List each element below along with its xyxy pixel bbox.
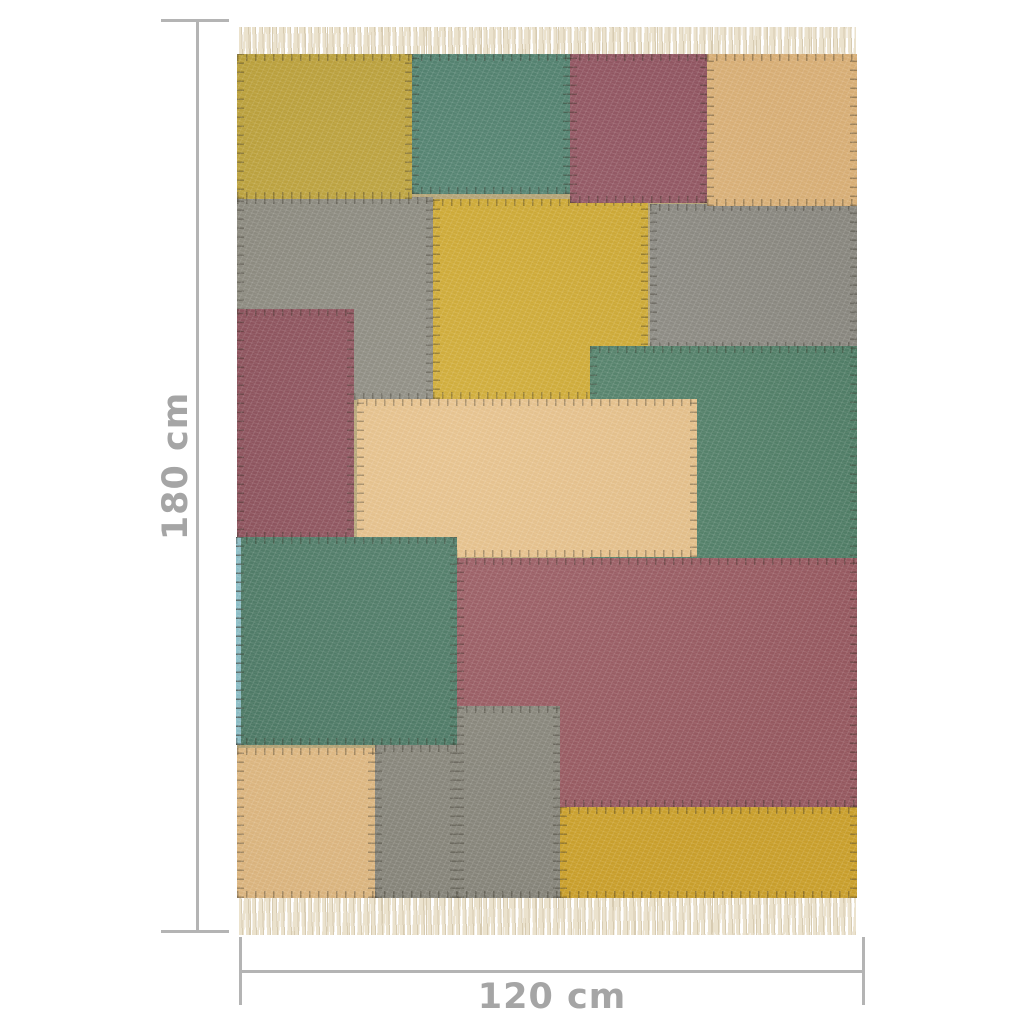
- rug-fringe-bottom: [239, 896, 856, 935]
- rug-patch-gray-bottom-lower: [375, 745, 457, 898]
- width-dimension-line: [239, 970, 865, 973]
- rug-patch-tan-bottom-left: [237, 748, 375, 898]
- rug-patch-selvage-left: [236, 537, 241, 745]
- height-dimension-label: 180 cm: [156, 392, 196, 540]
- rug-patch-gray-bottom-upper: [457, 706, 560, 898]
- rug-patch-tan-center: [357, 399, 697, 557]
- height-dimension-cap-top: [161, 19, 229, 22]
- height-dimension-cap-bottom: [161, 930, 229, 933]
- rug-patch-maroon-left: [237, 309, 354, 539]
- width-dimension-label: 120 cm: [478, 977, 626, 1017]
- width-dimension-cap-right: [862, 937, 865, 1005]
- product-image: 180 cm 120 cm: [0, 0, 1024, 1024]
- rug-patch-gray-right: [650, 204, 857, 349]
- rug-patch-yellow-bottom-right: [560, 807, 857, 898]
- rug-patch-green-top: [412, 54, 570, 194]
- rug-patch-tan-top-right: [707, 54, 857, 206]
- rug-fringe-top: [239, 27, 856, 56]
- rug-patch-yellow-top-left: [237, 54, 412, 199]
- rug-patch-green-bottom-left: [237, 537, 457, 745]
- rug: [237, 54, 857, 898]
- rug-patch-maroon-top: [570, 54, 707, 203]
- width-dimension-cap-left: [239, 937, 242, 1005]
- height-dimension-line: [196, 20, 199, 932]
